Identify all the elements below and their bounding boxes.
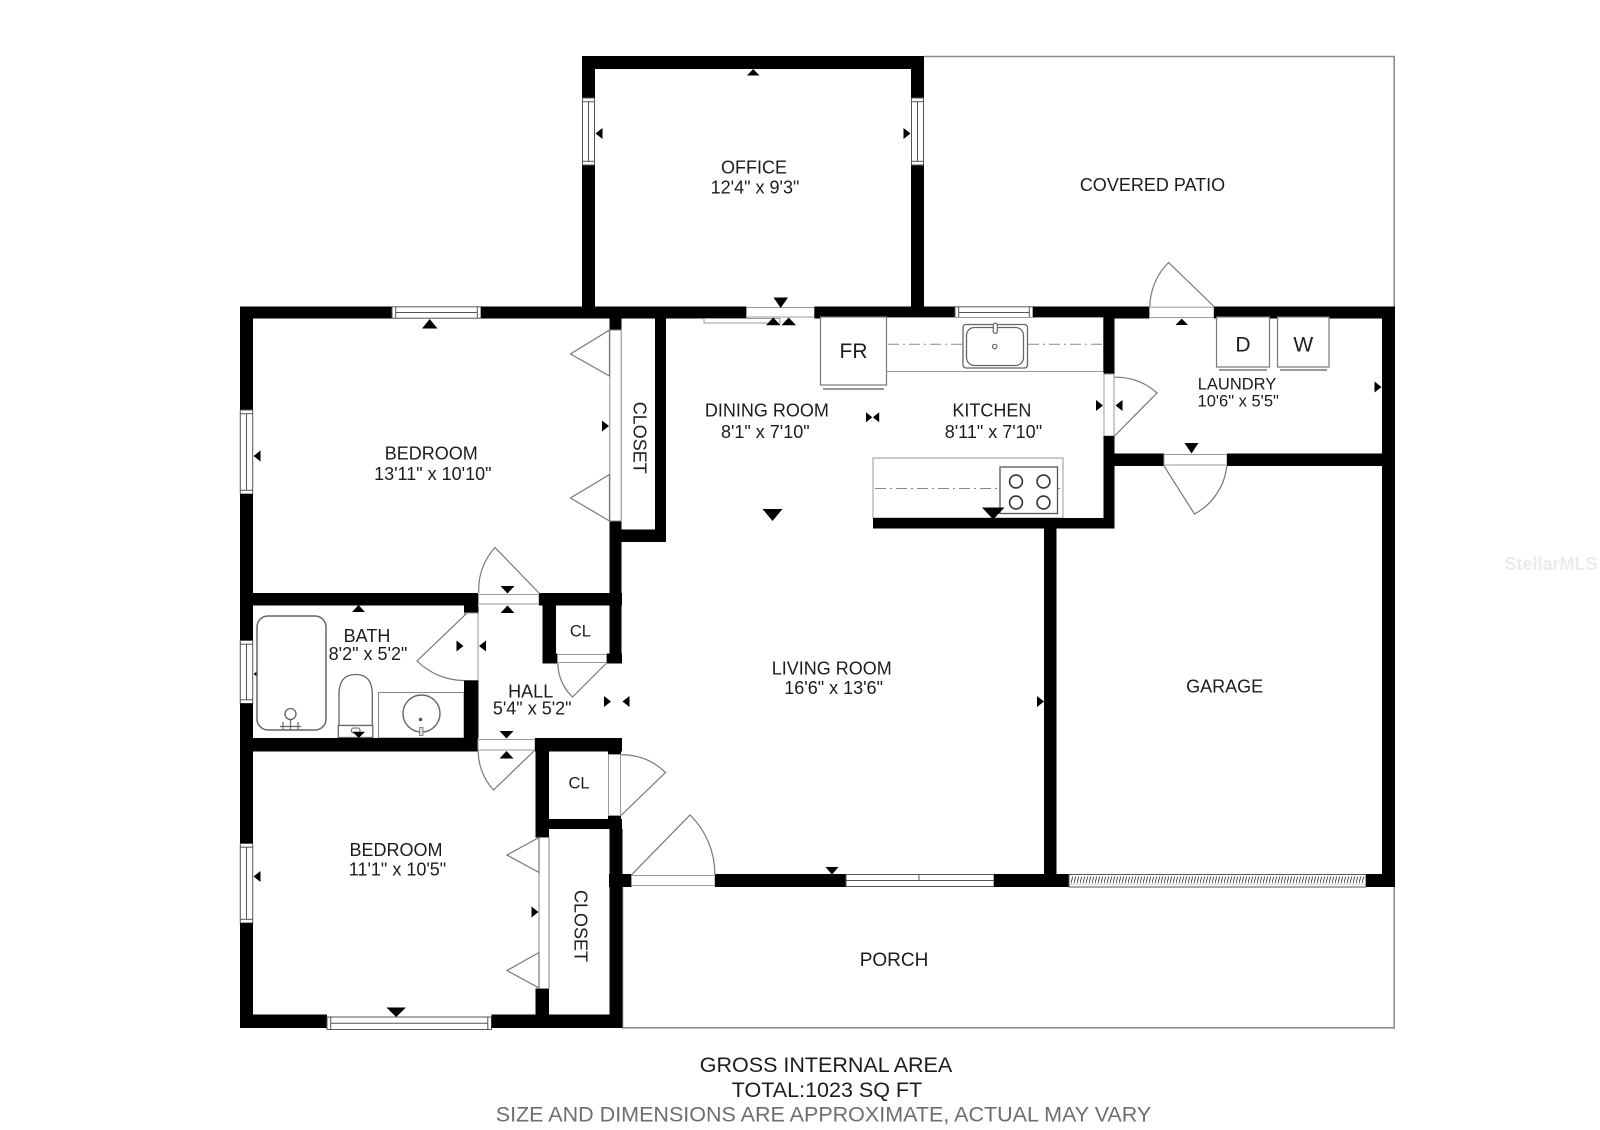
svg-text:SIZE AND DIMENSIONS ARE APPROX: SIZE AND DIMENSIONS ARE APPROXIMATE, ACT… — [496, 1103, 1152, 1127]
svg-text:16'6" x 13'6": 16'6" x 13'6" — [784, 678, 883, 698]
svg-text:GROSS INTERNAL AREA: GROSS INTERNAL AREA — [700, 1053, 953, 1077]
svg-text:OFFICE: OFFICE — [721, 157, 787, 177]
svg-text:GARAGE: GARAGE — [1186, 676, 1263, 696]
svg-text:8'1" x 7'10": 8'1" x 7'10" — [721, 422, 810, 442]
svg-text:FR: FR — [840, 340, 868, 363]
svg-text:BATH: BATH — [344, 626, 391, 646]
svg-text:W: W — [1293, 333, 1313, 356]
svg-text:LIVING ROOM: LIVING ROOM — [772, 659, 892, 679]
svg-text:BEDROOM: BEDROOM — [349, 840, 442, 860]
svg-text:StellarMLS: StellarMLS — [1504, 554, 1597, 574]
svg-text:KITCHEN: KITCHEN — [952, 400, 1031, 420]
svg-text:CLOSET: CLOSET — [630, 402, 650, 474]
svg-text:DINING ROOM: DINING ROOM — [705, 400, 829, 420]
svg-text:TOTAL:1023 SQ FT: TOTAL:1023 SQ FT — [732, 1078, 922, 1102]
svg-text:BEDROOM: BEDROOM — [385, 443, 478, 463]
svg-text:CL: CL — [570, 622, 591, 640]
svg-text:5'4" x 5'2": 5'4" x 5'2" — [493, 699, 572, 719]
svg-text:COVERED PATIO: COVERED PATIO — [1080, 175, 1225, 195]
svg-text:12'4" x 9'3": 12'4" x 9'3" — [711, 178, 800, 198]
svg-text:8'2" x 5'2": 8'2" x 5'2" — [329, 644, 408, 664]
svg-text:D: D — [1235, 333, 1250, 356]
svg-text:8'11" x 7'10": 8'11" x 7'10" — [945, 422, 1042, 442]
svg-text:CL: CL — [568, 775, 589, 793]
svg-text:13'11" x 10'10": 13'11" x 10'10" — [374, 464, 491, 484]
svg-text:CLOSET: CLOSET — [571, 890, 591, 962]
svg-text:PORCH: PORCH — [860, 950, 929, 971]
svg-text:11'1" x 10'5": 11'1" x 10'5" — [349, 859, 446, 879]
svg-text:10'6" x 5'5": 10'6" x 5'5" — [1198, 392, 1279, 410]
svg-text:LAUNDRY: LAUNDRY — [1198, 375, 1277, 393]
